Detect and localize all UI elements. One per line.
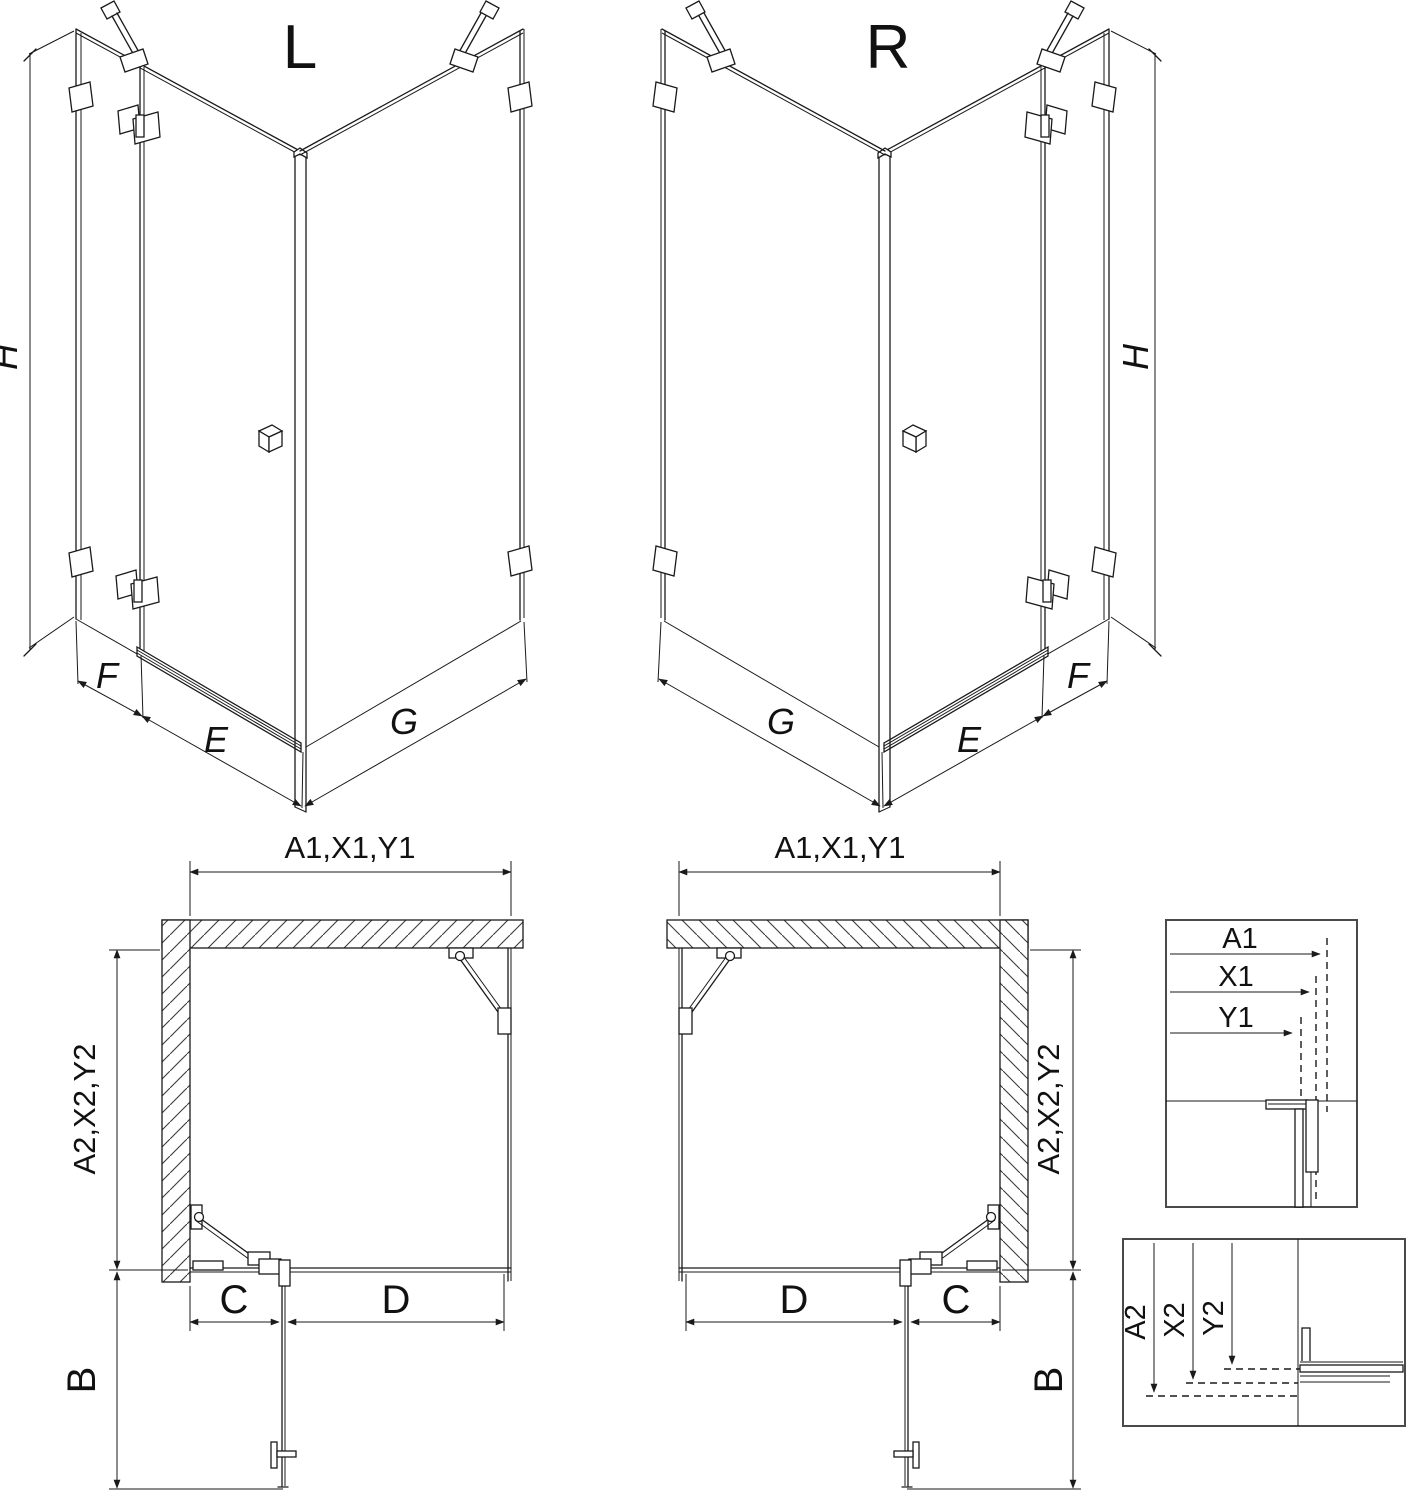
dim-label-f-left: F (96, 655, 120, 696)
plan-view-left: A1,X1,Y1 A2,X2,Y2 C D B (60, 830, 523, 1489)
detail-depth-label-y2: Y2 (1198, 1300, 1230, 1335)
technical-drawing-page: L H F E G R H F E G A1,X1,Y1 A2,X2,Y2 C … (0, 0, 1410, 1502)
detail-box-width: A1 X1 Y1 (1166, 920, 1357, 1207)
detail-depth-label-x2: X2 (1159, 1302, 1191, 1337)
iso-view-left: L H F E G (0, 1, 532, 812)
plan-left-segment-c: C (220, 1278, 249, 1322)
dim-label-e-right: E (957, 719, 982, 760)
plan-right-depth-dim: A2,X2,Y2 (1031, 1044, 1066, 1175)
detail-width-label-y1: Y1 (1218, 1002, 1253, 1034)
dim-label-g-left: G (390, 701, 418, 742)
detail-width-label-x1: X1 (1218, 961, 1253, 993)
plan-left-projection-b: B (60, 1367, 104, 1394)
plan-view-right: A1,X1,Y1 A2,X2,Y2 C D B (667, 830, 1081, 1489)
plan-right-width-dim: A1,X1,Y1 (775, 830, 906, 865)
plan-right-projection-b: B (1027, 1367, 1071, 1394)
iso-right-title: R (866, 13, 911, 82)
plan-left-depth-dim: A2,X2,Y2 (67, 1044, 102, 1175)
dim-label-e-left: E (204, 719, 229, 760)
plan-right-segment-d: D (780, 1278, 809, 1322)
iso-view-right: R H F E G (653, 1, 1161, 812)
dim-label-height-right: H (1115, 343, 1156, 370)
detail-width-label-a1: A1 (1222, 923, 1257, 955)
dim-label-g-right: G (767, 701, 795, 742)
detail-depth-label-a2: A2 (1120, 1304, 1152, 1339)
detail-box-depth: A2 X2 Y2 (1120, 1239, 1405, 1426)
shower-enclosure-drawing: L H F E G R H F E G A1,X1,Y1 A2,X2,Y2 C … (0, 0, 1410, 1502)
plan-left-width-dim: A1,X1,Y1 (285, 830, 416, 865)
dim-label-height-left: H (0, 343, 25, 370)
iso-left-title: L (283, 13, 317, 82)
plan-left-segment-d: D (382, 1278, 411, 1322)
dim-label-f-right: F (1067, 655, 1091, 696)
plan-right-segment-c: C (942, 1278, 971, 1322)
